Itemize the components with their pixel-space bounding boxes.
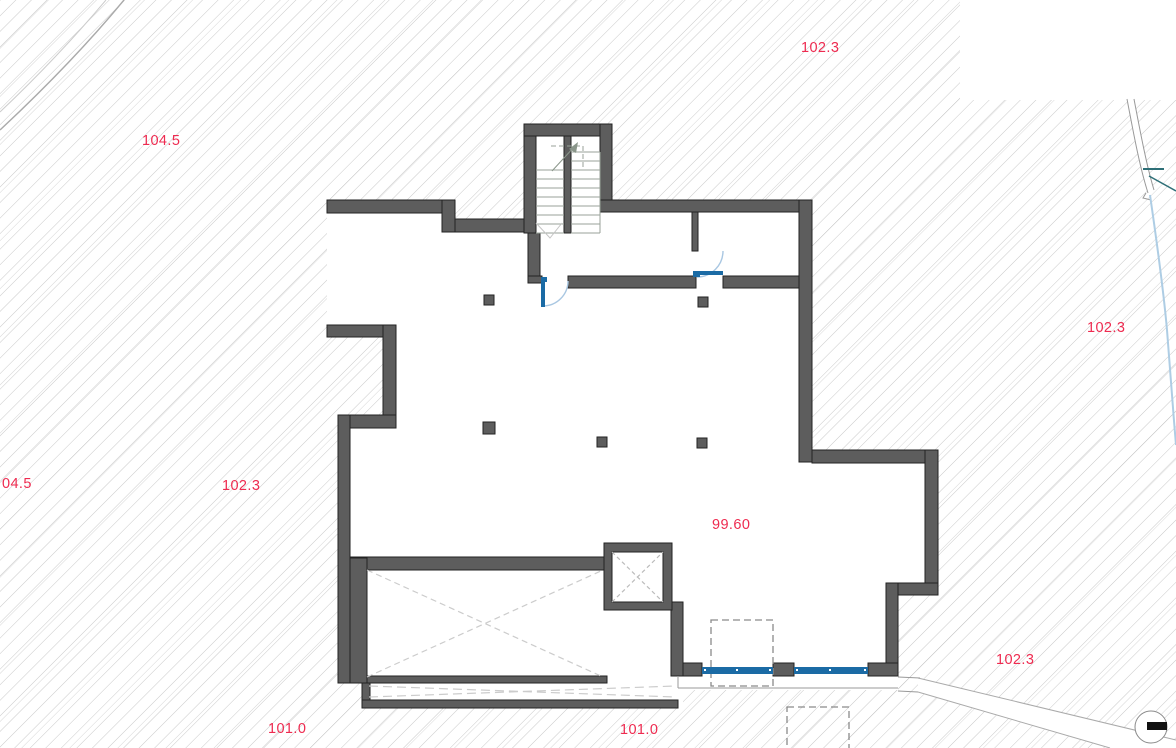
benchmark-marker (1135, 711, 1167, 743)
door-leaf (541, 281, 545, 307)
column (484, 295, 494, 305)
elevation-label: 102.3 (222, 478, 260, 494)
column (698, 297, 708, 307)
elevation-label: 102.3 (1087, 320, 1125, 336)
column (697, 438, 707, 448)
elevation-label: 99.60 (712, 517, 750, 533)
floor-plan-drawing (0, 0, 1176, 748)
door-hinge (541, 277, 547, 282)
door-leaf (700, 271, 723, 275)
elevation-label: 102.3 (996, 652, 1034, 668)
plot-corner-area (960, 0, 1176, 100)
door-hinge (693, 271, 700, 277)
column (597, 437, 607, 447)
elevation-label: 102.3 (801, 40, 839, 56)
elevation-label: 04.5 (2, 476, 32, 492)
elevation-label: 104.5 (142, 133, 180, 149)
benchmark-bar-icon (1147, 722, 1167, 730)
column (483, 422, 495, 434)
floor-plan-canvas: 102.3 104.5 04.5 102.3 99.60 102.3 102.3… (0, 0, 1176, 748)
elevation-label: 101.0 (620, 722, 658, 738)
elevation-label: 101.0 (268, 721, 306, 737)
